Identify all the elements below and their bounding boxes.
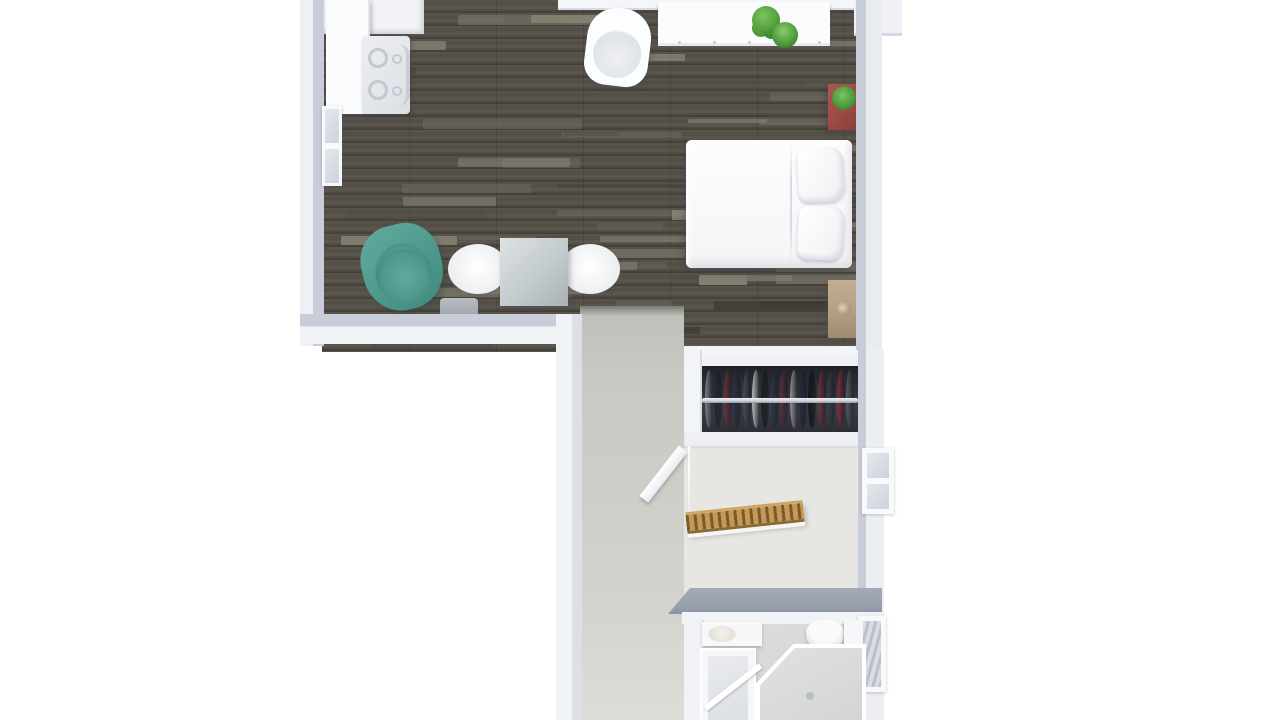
wall-south-livingroom xyxy=(300,314,580,344)
window-pane xyxy=(867,484,889,509)
armchair-seat xyxy=(369,238,437,308)
wardrobe-top-panel xyxy=(684,346,880,368)
wall-east-upper xyxy=(856,0,882,350)
plank-strip xyxy=(403,197,496,206)
plank-strip xyxy=(423,119,582,129)
burner xyxy=(368,48,388,68)
plank-strip xyxy=(725,275,792,281)
corridor-floor xyxy=(580,306,684,720)
sink-bowl xyxy=(708,626,736,642)
clothes-rail xyxy=(702,398,858,403)
dining-chair xyxy=(448,244,508,294)
nightstand-knob xyxy=(837,302,851,316)
plank-strip xyxy=(636,80,806,87)
plank-strip xyxy=(402,184,531,193)
potted-plant xyxy=(832,86,856,110)
potted-plant xyxy=(772,22,798,48)
plank-strip xyxy=(609,249,685,258)
oven-handle xyxy=(398,44,410,106)
window-pane xyxy=(325,149,339,183)
window-west xyxy=(322,106,342,186)
chair-seat xyxy=(590,27,643,80)
plank-strip xyxy=(558,184,696,188)
stove xyxy=(362,36,410,114)
desk-handle xyxy=(678,41,681,44)
pillow xyxy=(797,205,846,261)
dining-table xyxy=(500,238,568,306)
burner xyxy=(368,80,388,100)
wall-west xyxy=(300,0,324,346)
dining-chair xyxy=(560,244,620,294)
floor-plan-canvas xyxy=(0,0,1280,720)
desk-handle xyxy=(818,41,821,44)
desk-handle xyxy=(748,41,751,44)
plank-strip xyxy=(564,132,619,136)
plank-strip xyxy=(760,54,858,58)
desk xyxy=(658,2,830,46)
wall-stair-south-face xyxy=(668,588,882,614)
shower-drain xyxy=(806,692,814,700)
wall-corridor-west xyxy=(556,314,582,720)
wall-bathroom-west xyxy=(684,620,704,720)
pillow xyxy=(797,147,846,203)
plank-strip xyxy=(347,210,485,219)
double-bed xyxy=(686,140,852,268)
floor-shadow xyxy=(580,306,684,316)
window-pane xyxy=(325,109,339,143)
plank-strip xyxy=(458,158,570,167)
vanity-sink xyxy=(702,622,762,646)
plank-strip xyxy=(597,223,663,230)
bathtub xyxy=(702,650,754,720)
duvet-fold xyxy=(790,144,792,264)
window-pane xyxy=(867,453,889,478)
window-staircase xyxy=(862,448,894,514)
plank-strip xyxy=(688,119,767,123)
desk-handle xyxy=(713,41,716,44)
